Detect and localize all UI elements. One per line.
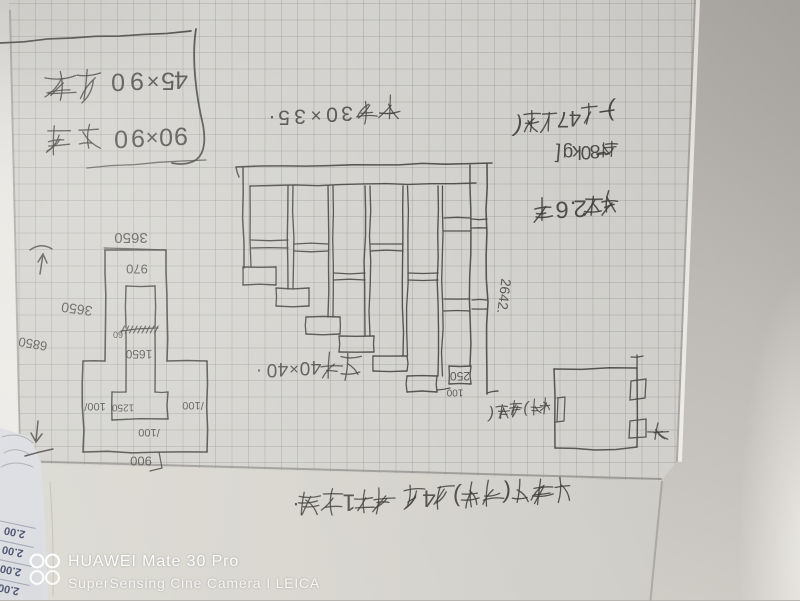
svg-text:(: ( — [502, 479, 512, 507]
svg-text:g: g — [563, 142, 574, 163]
svg-text:/100: /100 — [138, 426, 159, 438]
svg-text:3650: 3650 — [60, 299, 93, 319]
svg-text:(: ( — [510, 113, 525, 141]
svg-text:4: 4 — [310, 356, 321, 377]
svg-text:/100: /100 — [182, 399, 203, 411]
svg-text:5: 5 — [161, 66, 175, 94]
svg-text:0: 0 — [326, 102, 338, 125]
svg-text:3: 3 — [294, 104, 306, 127]
svg-text:0: 0 — [300, 357, 311, 378]
svg-text:×: × — [310, 104, 321, 125]
svg-text:0: 0 — [111, 67, 125, 95]
svg-text:6: 6 — [555, 196, 568, 223]
svg-text:4: 4 — [174, 65, 188, 93]
svg-text:4: 4 — [569, 106, 581, 131]
svg-text:×: × — [146, 125, 159, 150]
svg-text:100/: 100/ — [83, 400, 105, 412]
svg-text:6850: 6850 — [17, 334, 48, 354]
svg-text:(: ( — [522, 399, 531, 417]
svg-text:3650: 3650 — [114, 229, 147, 246]
svg-text:1: 1 — [342, 489, 355, 516]
svg-text:·: · — [268, 106, 275, 131]
svg-text:250: 250 — [450, 369, 470, 383]
svg-text:9: 9 — [174, 121, 188, 149]
svg-text:3: 3 — [341, 101, 353, 124]
svg-text:4: 4 — [277, 358, 288, 379]
svg-text:1250: 1250 — [111, 401, 134, 412]
svg-text:970: 970 — [126, 262, 148, 277]
svg-text:·: · — [292, 493, 299, 518]
svg-text:×: × — [147, 69, 160, 94]
svg-text:1650: 1650 — [125, 347, 152, 361]
svg-text:(: ( — [486, 405, 495, 425]
svg-text:9: 9 — [131, 123, 145, 151]
svg-text:100: 100 — [446, 386, 463, 397]
svg-text:k: k — [572, 141, 582, 162]
svg-text:(: ( — [606, 94, 616, 122]
svg-text:[: [ — [554, 142, 562, 164]
svg-text:·: · — [256, 361, 262, 381]
svg-text:0: 0 — [159, 122, 173, 150]
svg-text:5: 5 — [278, 105, 290, 128]
svg-text:8: 8 — [590, 140, 601, 161]
svg-text:0: 0 — [114, 124, 128, 152]
svg-text:60: 60 — [113, 330, 123, 340]
svg-text:9: 9 — [130, 66, 144, 94]
svg-text:2642.: 2642. — [494, 278, 514, 315]
svg-text:0: 0 — [581, 141, 592, 162]
svg-text:0: 0 — [267, 359, 278, 380]
svg-text:2: 2 — [573, 195, 586, 222]
svg-text:7: 7 — [557, 107, 569, 132]
svg-text:4: 4 — [422, 485, 435, 512]
svg-text:900: 900 — [130, 454, 152, 469]
svg-text:×: × — [289, 360, 299, 379]
